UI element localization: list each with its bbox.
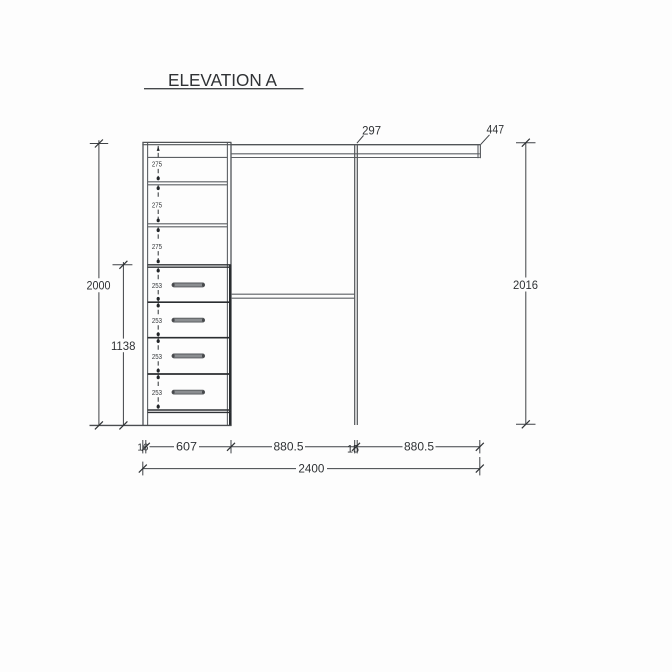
- svg-text:2016: 2016: [513, 278, 538, 292]
- svg-text:607: 607: [176, 440, 197, 454]
- svg-text:275: 275: [152, 200, 162, 209]
- svg-text:ELEVATION A: ELEVATION A: [168, 70, 277, 90]
- svg-text:253: 253: [152, 316, 162, 325]
- svg-text:15: 15: [347, 443, 359, 455]
- svg-text:880.5: 880.5: [274, 440, 304, 454]
- svg-text:253: 253: [152, 281, 162, 290]
- svg-text:275: 275: [152, 242, 162, 251]
- svg-text:447: 447: [487, 123, 505, 137]
- svg-text:297: 297: [362, 123, 381, 137]
- svg-text:1138: 1138: [111, 339, 136, 353]
- svg-text:253: 253: [152, 352, 162, 361]
- svg-text:2400: 2400: [298, 461, 324, 475]
- svg-text:880.5: 880.5: [404, 440, 434, 454]
- svg-text:253: 253: [152, 388, 162, 397]
- svg-text:2000: 2000: [87, 279, 111, 293]
- svg-text:275: 275: [152, 160, 162, 169]
